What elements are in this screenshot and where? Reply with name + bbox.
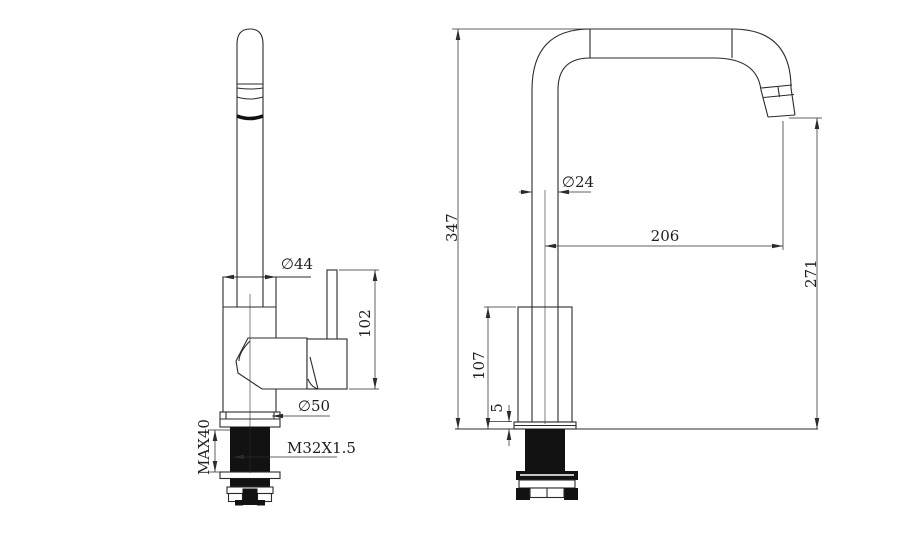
front-mounting-nut — [227, 487, 273, 506]
dim-handle-height-label: 102 — [357, 310, 373, 338]
handle-joint — [236, 338, 307, 389]
dim-body-height-label: 107 — [471, 352, 487, 380]
faucet-technical-drawing: ∅44 102 ∅50 MAX40 M32X1.5 347 ∅24 206 27… — [0, 0, 900, 533]
dim-base-diameter-label: ∅50 — [296, 398, 332, 414]
front-spout-outline — [237, 29, 263, 278]
side-threaded-shank — [525, 429, 565, 471]
dim-base-plate-thickness-label: 5 — [489, 401, 505, 415]
dim-overall-height-label: 347 — [444, 214, 460, 242]
dim-spout-reach-label: 206 — [650, 228, 680, 244]
side-view — [452, 29, 822, 500]
spout-outlet-tip — [761, 85, 795, 117]
dim-thread-spec-label: M32X1.5 — [287, 440, 343, 456]
side-dimension-lines — [452, 29, 822, 446]
dim-spout-outlet-height-label: 271 — [803, 260, 819, 288]
drawing-canvas — [0, 0, 900, 533]
handle-lever — [327, 270, 337, 340]
dim-max-mounting-thickness-label: MAX40 — [196, 427, 212, 475]
dim-spout-tube-diameter-label: ∅24 — [560, 174, 596, 190]
side-spout-outer — [532, 29, 795, 307]
dim-body-diameter-label: ∅44 — [279, 256, 315, 272]
side-mounting-nut — [516, 471, 578, 500]
handle-base — [307, 339, 347, 389]
